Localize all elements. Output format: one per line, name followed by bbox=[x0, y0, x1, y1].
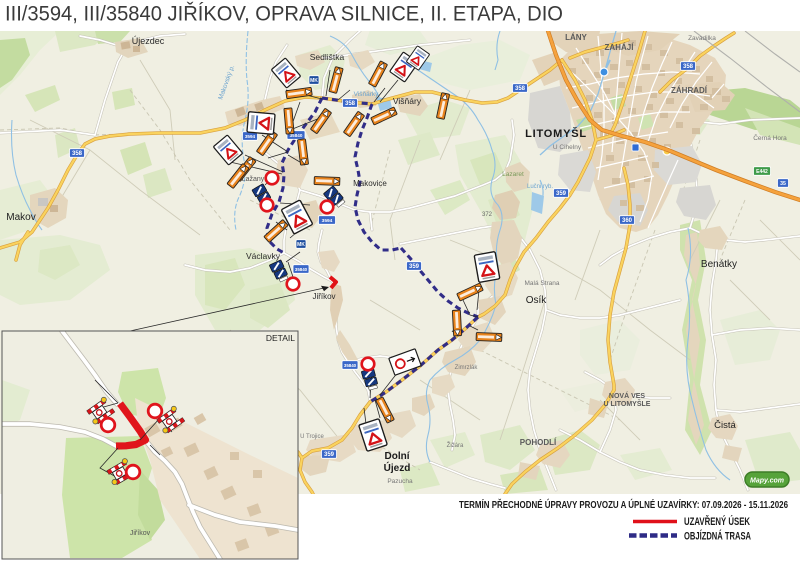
svg-text:Lazaret: Lazaret bbox=[502, 171, 524, 178]
svg-text:U Cihelny: U Cihelny bbox=[553, 144, 582, 151]
svg-text:U LITOMYŠLE: U LITOMYŠLE bbox=[604, 399, 651, 408]
svg-text:Malá Strana: Malá Strana bbox=[524, 280, 559, 287]
svg-text:ZÁHRADÍ: ZÁHRADÍ bbox=[671, 86, 708, 95]
svg-text:E442: E442 bbox=[756, 169, 768, 175]
svg-text:Sedlištka: Sedlištka bbox=[310, 52, 345, 62]
svg-text:OBJÍZDNÁ TRASA: OBJÍZDNÁ TRASA bbox=[684, 530, 751, 543]
svg-text:3594: 3594 bbox=[322, 218, 333, 224]
svg-text:Pazucha: Pazucha bbox=[387, 478, 413, 485]
svg-text:Lučni ryb.: Lučni ryb. bbox=[527, 184, 553, 190]
svg-text:Zimrzlák: Zimrzlák bbox=[455, 365, 479, 371]
svg-text:359: 359 bbox=[324, 452, 335, 458]
svg-text:UZAVŘENÝ ÚSEK: UZAVŘENÝ ÚSEK bbox=[684, 515, 750, 528]
svg-text:358: 358 bbox=[345, 101, 356, 107]
svg-text:Čistá: Čistá bbox=[714, 420, 736, 431]
svg-text:Žižára: Žižára bbox=[447, 441, 464, 449]
svg-text:Osík: Osík bbox=[526, 295, 548, 306]
svg-text:35840: 35840 bbox=[344, 363, 357, 368]
svg-text:Černá Hora: Černá Hora bbox=[753, 133, 787, 142]
svg-text:MK: MK bbox=[310, 78, 318, 84]
svg-text:Mapy.com: Mapy.com bbox=[750, 478, 784, 485]
svg-text:358: 358 bbox=[683, 64, 694, 70]
svg-text:Újezd: Újezd bbox=[384, 461, 411, 474]
svg-text:Václavky: Václavky bbox=[246, 251, 281, 261]
svg-text:LITOMYŠL: LITOMYŠL bbox=[525, 127, 587, 140]
svg-text:Jiříkov: Jiříkov bbox=[312, 292, 335, 301]
svg-text:359: 359 bbox=[409, 264, 420, 270]
svg-text:Višňárky: Višňárky bbox=[354, 91, 380, 98]
svg-text:III/3594, III/35840 JIŘÍKOV, O: III/3594, III/35840 JIŘÍKOV, OPRAVA SILN… bbox=[5, 1, 563, 26]
svg-text:35840: 35840 bbox=[295, 267, 308, 272]
svg-text:Újezdec: Újezdec bbox=[132, 36, 165, 46]
svg-text:Dolní: Dolní bbox=[385, 451, 411, 462]
svg-text:Zavadilka: Zavadilka bbox=[688, 35, 716, 42]
svg-text:Makov: Makov bbox=[6, 212, 35, 223]
svg-text:3594: 3594 bbox=[245, 134, 256, 139]
svg-text:MK: MK bbox=[297, 242, 305, 248]
svg-text:TERMÍN PŘECHODNÉ ÚPRAVY PROVOZ: TERMÍN PŘECHODNÉ ÚPRAVY PROVOZU A ÚPLNÉ … bbox=[459, 498, 788, 511]
svg-text:358: 358 bbox=[72, 151, 83, 157]
svg-text:ZAHÁJÍ: ZAHÁJÍ bbox=[605, 43, 635, 52]
svg-text:LÁNY: LÁNY bbox=[565, 33, 587, 42]
svg-text:POHODLÍ: POHODLÍ bbox=[520, 438, 557, 447]
svg-text:U Trojice: U Trojice bbox=[300, 434, 324, 440]
svg-text:Benátky: Benátky bbox=[701, 259, 737, 270]
svg-text:Jiříkov: Jiříkov bbox=[130, 530, 151, 537]
svg-text:Lažany: Lažany bbox=[242, 176, 265, 183]
svg-text:35: 35 bbox=[780, 181, 786, 187]
svg-text:NOVÁ VES: NOVÁ VES bbox=[609, 391, 646, 400]
svg-text:372: 372 bbox=[482, 212, 493, 218]
svg-text:360: 360 bbox=[622, 218, 633, 224]
svg-text:DETAIL: DETAIL bbox=[266, 333, 295, 343]
svg-text:358: 358 bbox=[515, 86, 526, 92]
svg-text:Makovice: Makovice bbox=[353, 179, 387, 188]
svg-text:Višňáry: Višňáry bbox=[393, 96, 422, 106]
svg-text:359: 359 bbox=[556, 191, 567, 197]
